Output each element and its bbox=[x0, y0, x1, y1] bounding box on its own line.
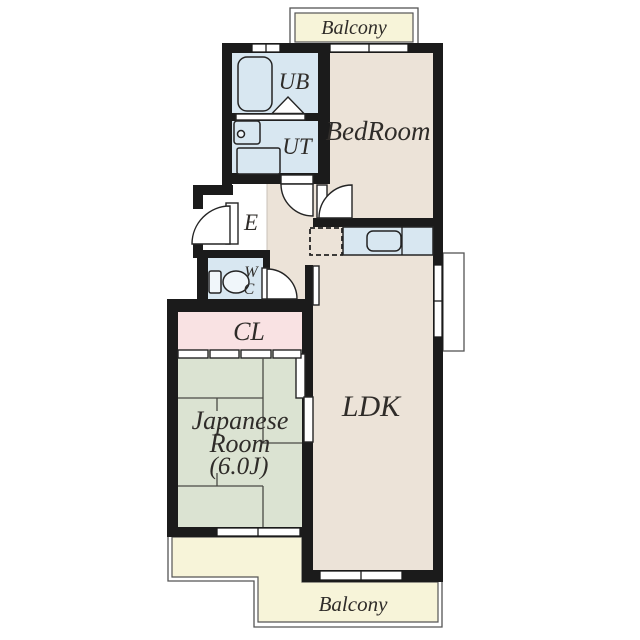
wall-segment bbox=[167, 299, 313, 312]
wall-segment bbox=[313, 218, 433, 227]
ldk-door-leaf bbox=[313, 266, 319, 305]
bedroom-label: BedRoom bbox=[326, 116, 431, 146]
floor-plan: Balcony UB UT BedRoom E W C CL Japanese … bbox=[0, 0, 640, 640]
ldk-label: LDK bbox=[341, 390, 402, 423]
wc-label-line2: C bbox=[244, 281, 255, 298]
kitchen-sink-fixture bbox=[367, 231, 401, 251]
toilet-tank-fixture bbox=[209, 271, 221, 293]
wall-segment bbox=[305, 265, 313, 309]
closet-sliding-panel bbox=[178, 350, 208, 358]
faucet-icon bbox=[238, 131, 245, 138]
wc-label-line1: W bbox=[244, 264, 259, 281]
japanese-room-label-line3: (6.0J) bbox=[210, 453, 269, 480]
bay-window-box bbox=[443, 253, 464, 351]
wall-segment bbox=[193, 250, 270, 258]
closet-sliding-panel bbox=[241, 350, 271, 358]
unit-bath-label: UB bbox=[279, 69, 310, 94]
balcony-bottom-label: Balcony bbox=[319, 592, 388, 616]
washing-machine-fixture bbox=[237, 148, 280, 174]
closet-label: CL bbox=[233, 317, 265, 346]
bathtub-fixture bbox=[238, 57, 272, 111]
closet-sliding-panel bbox=[273, 350, 301, 358]
wall-segment bbox=[167, 312, 178, 537]
entrance-label: E bbox=[243, 210, 258, 235]
balcony-top-label: Balcony bbox=[321, 17, 387, 39]
wall-segment bbox=[302, 312, 313, 582]
closet-sliding-panel bbox=[210, 350, 239, 358]
utility-label: UT bbox=[282, 134, 314, 159]
entry-door-arc bbox=[192, 206, 230, 244]
utility-door-leaf bbox=[281, 175, 313, 184]
wall-segment bbox=[197, 258, 208, 299]
wall-segment bbox=[193, 195, 203, 209]
wall-segment bbox=[222, 53, 232, 185]
wall-segment bbox=[193, 185, 233, 195]
japanese-sliding-door-panel bbox=[304, 397, 313, 442]
japanese-sliding-door-panel bbox=[296, 354, 305, 398]
unit-bath-door-opening bbox=[236, 114, 305, 120]
